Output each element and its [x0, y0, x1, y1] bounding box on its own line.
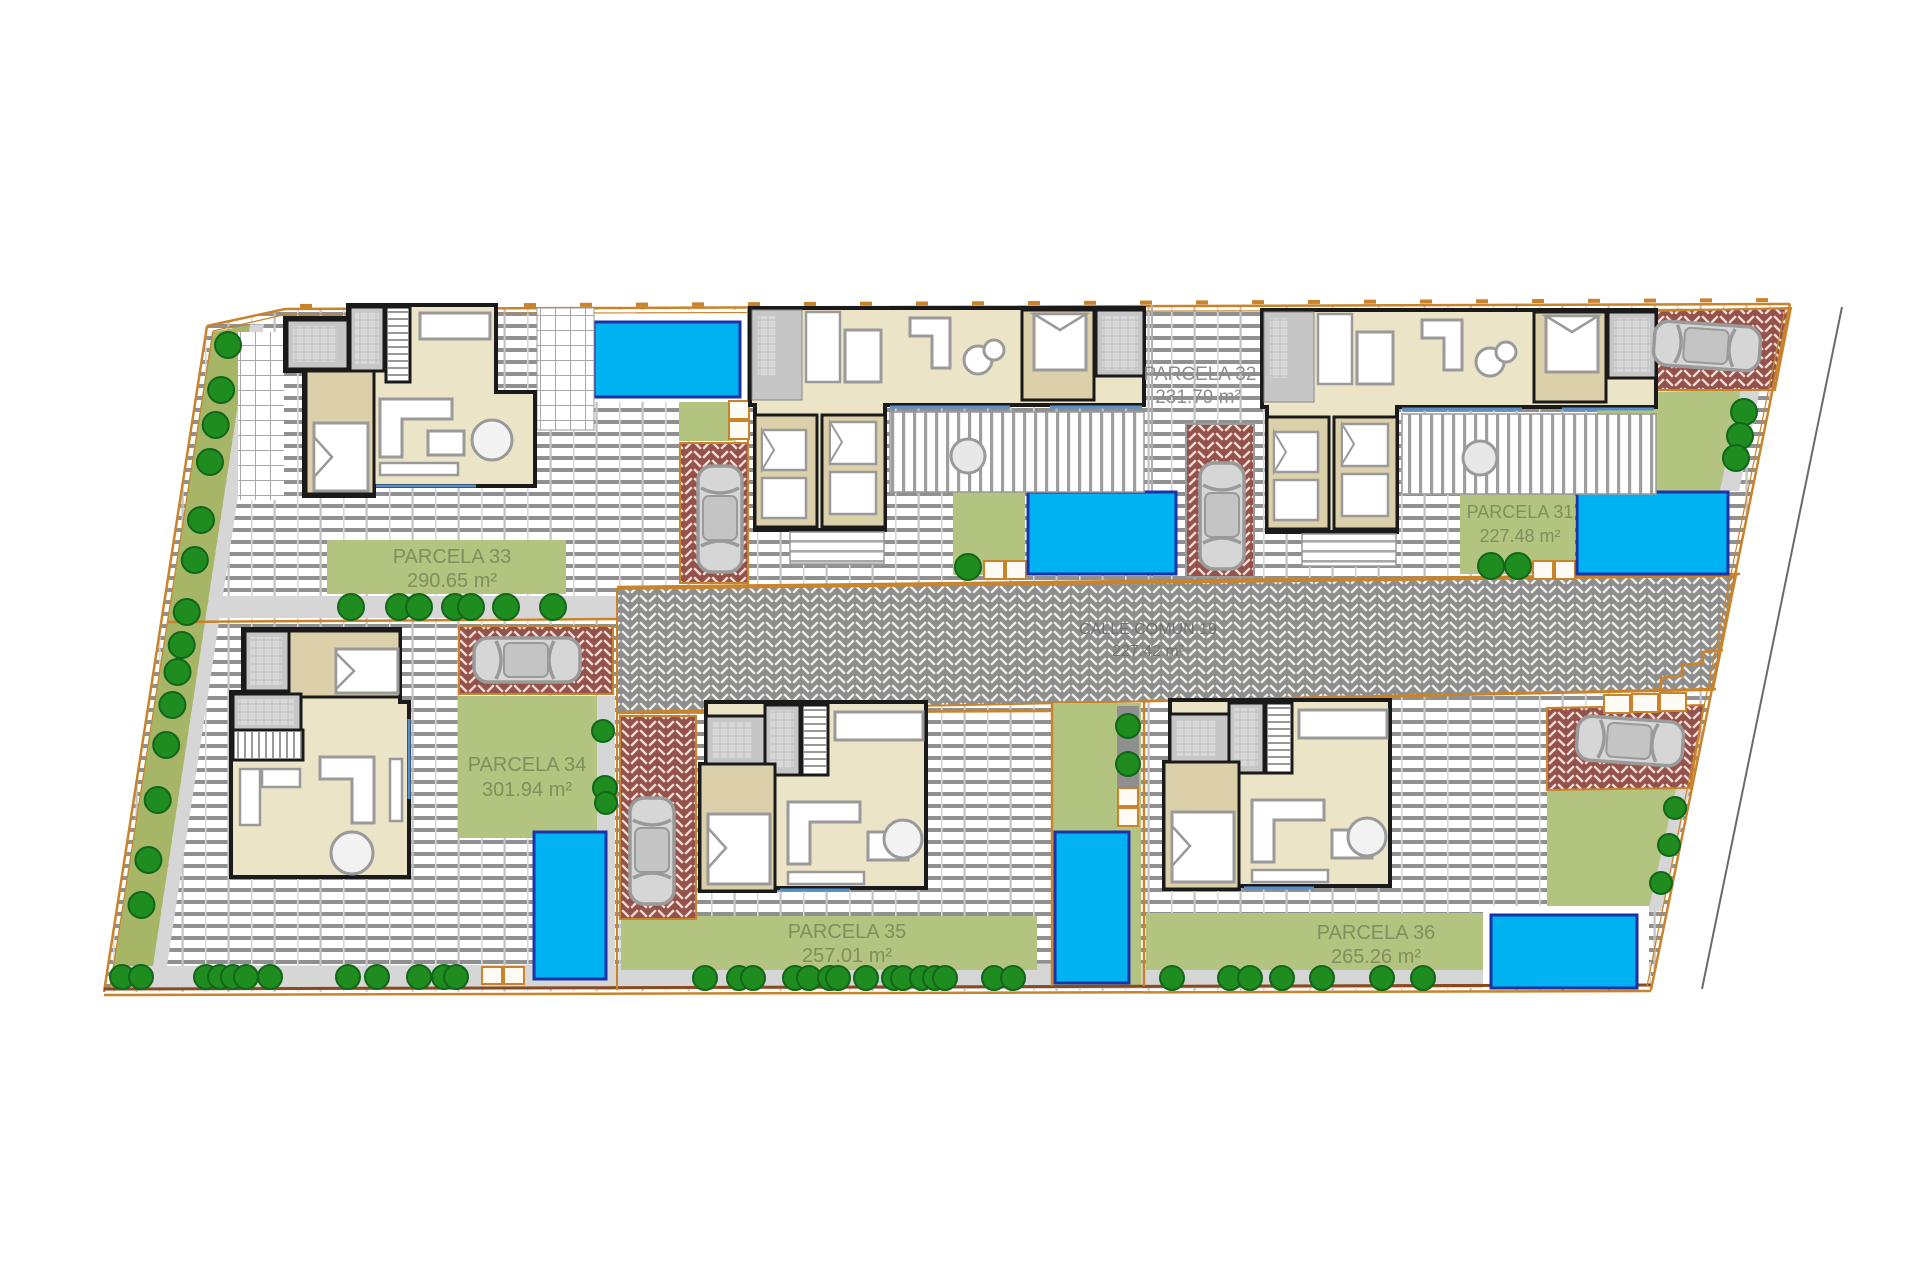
svg-text:PARCELA 36: PARCELA 36 — [1317, 922, 1436, 944]
svg-text:CALLE COMUN 19: CALLE COMUN 19 — [1079, 621, 1217, 638]
svg-text:PARCELA 33: PARCELA 33 — [393, 546, 512, 568]
svg-text:PARCELA 31: PARCELA 31 — [1467, 502, 1574, 522]
svg-text:301.94 m²: 301.94 m² — [482, 779, 572, 801]
svg-text:257.01 m²: 257.01 m² — [802, 945, 892, 967]
svg-text:290.65 m²: 290.65 m² — [407, 570, 497, 592]
svg-text:227.42 m²: 227.42 m² — [1112, 643, 1185, 660]
svg-text:231.79 m²: 231.79 m² — [1155, 387, 1241, 408]
svg-text:227.48 m²: 227.48 m² — [1479, 526, 1560, 546]
svg-text:265.26 m²: 265.26 m² — [1331, 946, 1421, 968]
svg-text:PARCELA 32: PARCELA 32 — [1144, 364, 1257, 385]
svg-text:PARCELA 35: PARCELA 35 — [788, 921, 907, 943]
svg-text:PARCELA 34: PARCELA 34 — [468, 754, 587, 776]
